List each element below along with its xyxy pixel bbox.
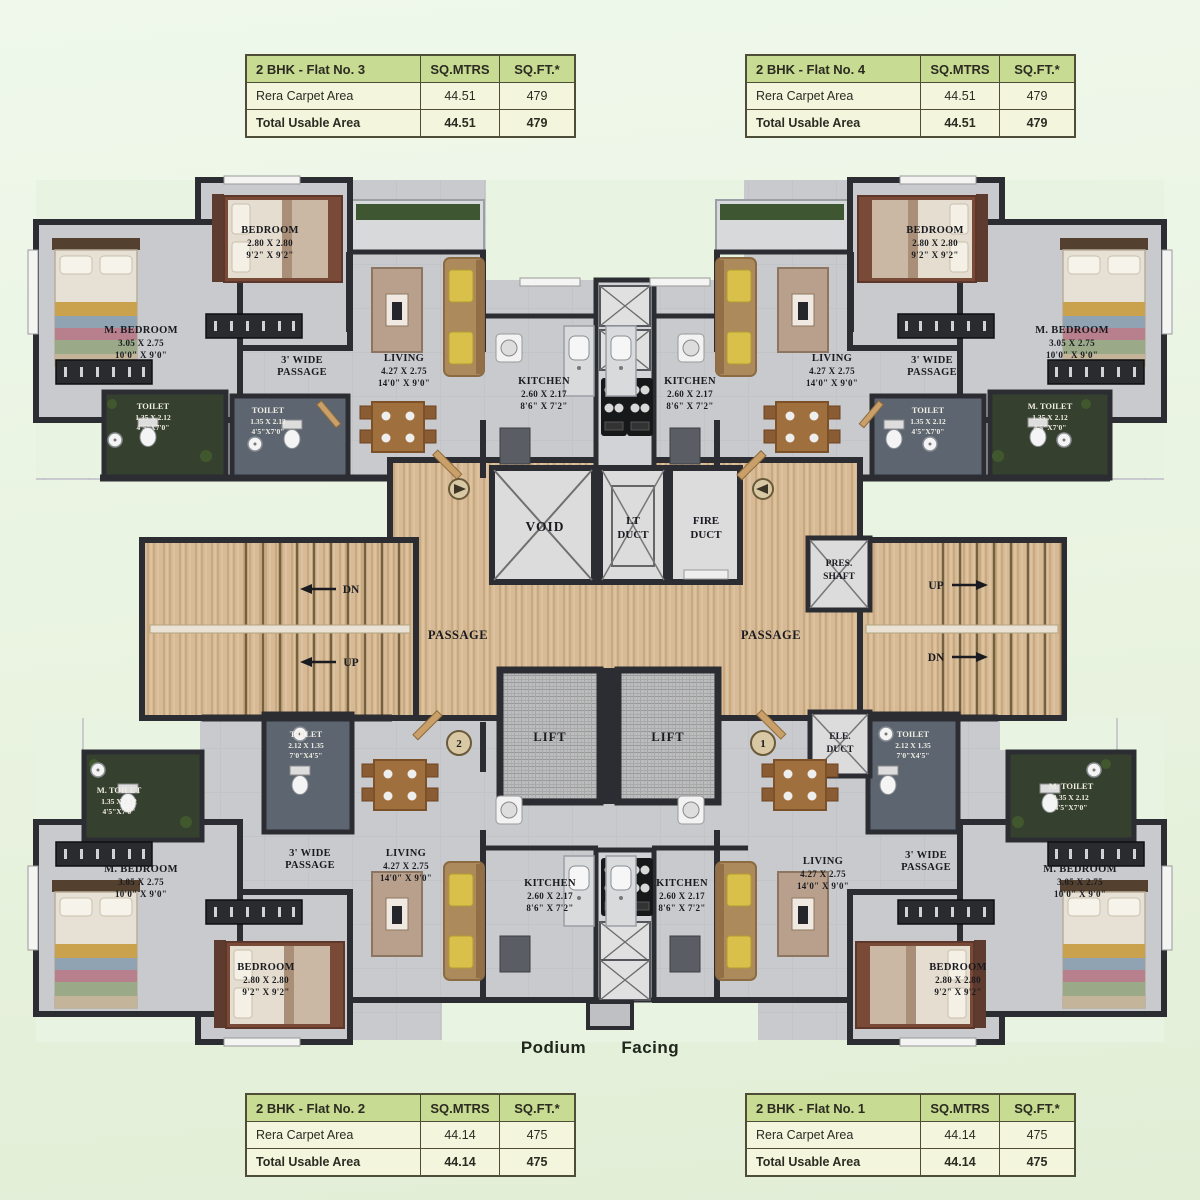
label-bedroom-flat2: BEDROOM2.80 X 2.809'2" X 9'2"	[237, 962, 295, 997]
col-sqft: SQ.FT.*	[1000, 55, 1076, 83]
label-kitchen-flat3: KITCHEN2.60 X 2.178'6" X 7'2"	[518, 376, 570, 411]
label-toilet-b-flat3: TOILET1.35 X 2.124'5"X7'0"	[250, 405, 286, 436]
label-bedroom-flat1: BEDROOM2.80 X 2.809'2" X 9'2"	[929, 962, 987, 997]
label-void: VOID	[526, 519, 565, 534]
label-living-flat4: LIVING4.27 X 2.7514'0" X 9'0"	[806, 353, 858, 388]
label-m-toilet-flat2: M. TOILET1.35 X 2.124'5"X7'0"	[97, 785, 142, 816]
label-kitchen-flat1: KITCHEN2.60 X 2.178'6" X 7'2"	[656, 878, 708, 913]
label-bedroom-flat4: BEDROOM2.80 X 2.809'2" X 9'2"	[906, 225, 964, 260]
col-sqmtrs: SQ.MTRS	[421, 55, 500, 83]
floor-plan-page: M. BEDROOM3.05 X 2.7510'0" X 9'0" BEDROO…	[0, 0, 1200, 1200]
label-passage-right: PASSAGE	[741, 628, 801, 642]
label-m-toilet-flat1: M. TOILET1.35 X 2.124'5"X7'0"	[1049, 781, 1094, 812]
podium-facing-label: Podium Facing	[450, 1038, 750, 1058]
label-dn-right: DN	[928, 652, 945, 664]
col-sqft: SQ.FT.*	[1000, 1094, 1076, 1122]
staircase-left	[142, 540, 416, 718]
table-row: Rera Carpet Area44.51479	[246, 83, 575, 110]
area-table-flat2: 2 BHK - Flat No. 2SQ.MTRSSQ.FT.* Rera Ca…	[245, 1093, 576, 1177]
label-kitchen-flat4: KITCHEN2.60 X 2.178'6" X 7'2"	[664, 376, 716, 411]
table-row: Rera Carpet Area44.51479	[746, 83, 1075, 110]
table-title: 2 BHK - Flat No. 1	[746, 1094, 921, 1122]
label-flat1-number: 1	[760, 738, 766, 750]
label-lift-left: LIFT	[533, 730, 566, 744]
table-title: 2 BHK - Flat No. 2	[246, 1094, 421, 1122]
table-title: 2 BHK - Flat No. 4	[746, 55, 921, 83]
label-living-flat1: LIVING4.27 X 2.7514'0" X 9'0"	[797, 856, 849, 891]
col-sqmtrs: SQ.MTRS	[921, 55, 1000, 83]
label-passage-flat1: 3' WIDEPASSAGE	[901, 850, 951, 873]
table-title: 2 BHK - Flat No. 3	[246, 55, 421, 83]
table-row: Total Usable Area44.51479	[746, 110, 1075, 138]
label-living-flat2: LIVING4.27 X 2.7514'0" X 9'0"	[380, 848, 432, 883]
label-toilet-a-flat3: TOILET1.35 X 2.124'5"X7'0"	[135, 401, 171, 432]
label-passage-flat2: 3' WIDEPASSAGE	[285, 848, 335, 871]
col-sqmtrs: SQ.MTRS	[421, 1094, 500, 1122]
table-row: Total Usable Area44.51479	[246, 110, 575, 138]
area-table-flat1: 2 BHK - Flat No. 1SQ.MTRSSQ.FT.* Rera Ca…	[745, 1093, 1076, 1177]
staircase-right	[860, 540, 1064, 718]
label-passage-flat4: 3' WIDEPASSAGE	[907, 355, 957, 378]
area-table-flat4: 2 BHK - Flat No. 4SQ.MTRSSQ.FT.* Rera Ca…	[745, 54, 1076, 138]
label-dn-left: DN	[343, 584, 360, 596]
label-toilet-flat1: TOILET2.12 X 1.357'0"X4'5"	[895, 729, 931, 760]
label-up-right: UP	[928, 580, 943, 592]
label-bedroom-flat3: BEDROOM2.80 X 2.809'2" X 9'2"	[241, 225, 299, 260]
col-sqft: SQ.FT.*	[500, 1094, 576, 1122]
table-row: Rera Carpet Area44.14475	[246, 1122, 575, 1149]
table-row: Rera Carpet Area44.14475	[746, 1122, 1075, 1149]
label-living-flat3: LIVING4.27 X 2.7514'0" X 9'0"	[378, 353, 430, 388]
balcony-stub-bottom	[588, 1002, 632, 1028]
label-m-toilet-flat4: M. TOILET1.35 X 2.124'5"X7'0"	[1028, 401, 1073, 432]
floor-plan: M. BEDROOM3.05 X 2.7510'0" X 9'0" BEDROO…	[0, 0, 1200, 1200]
label-passage-flat3: 3' WIDEPASSAGE	[277, 355, 327, 378]
label-flat2-number: 2	[456, 738, 462, 750]
col-sqft: SQ.FT.*	[500, 55, 576, 83]
col-sqmtrs: SQ.MTRS	[921, 1094, 1000, 1122]
table-row: Total Usable Area44.14475	[746, 1149, 1075, 1177]
label-kitchen-flat2: KITCHEN2.60 X 2.178'6" X 7'2"	[524, 878, 576, 913]
label-passage-left: PASSAGE	[428, 628, 488, 642]
area-table-flat3: 2 BHK - Flat No. 3SQ.MTRSSQ.FT.* Rera Ca…	[245, 54, 576, 138]
table-row: Total Usable Area44.14475	[246, 1149, 575, 1177]
label-toilet-flat4: TOILET1.35 X 2.124'5"X7'0"	[910, 405, 946, 436]
label-toilet-flat2: TOILET2.12 X 1.357'0"X4'5"	[288, 729, 324, 760]
label-up-left: UP	[343, 657, 358, 669]
label-lift-right: LIFT	[651, 730, 684, 744]
